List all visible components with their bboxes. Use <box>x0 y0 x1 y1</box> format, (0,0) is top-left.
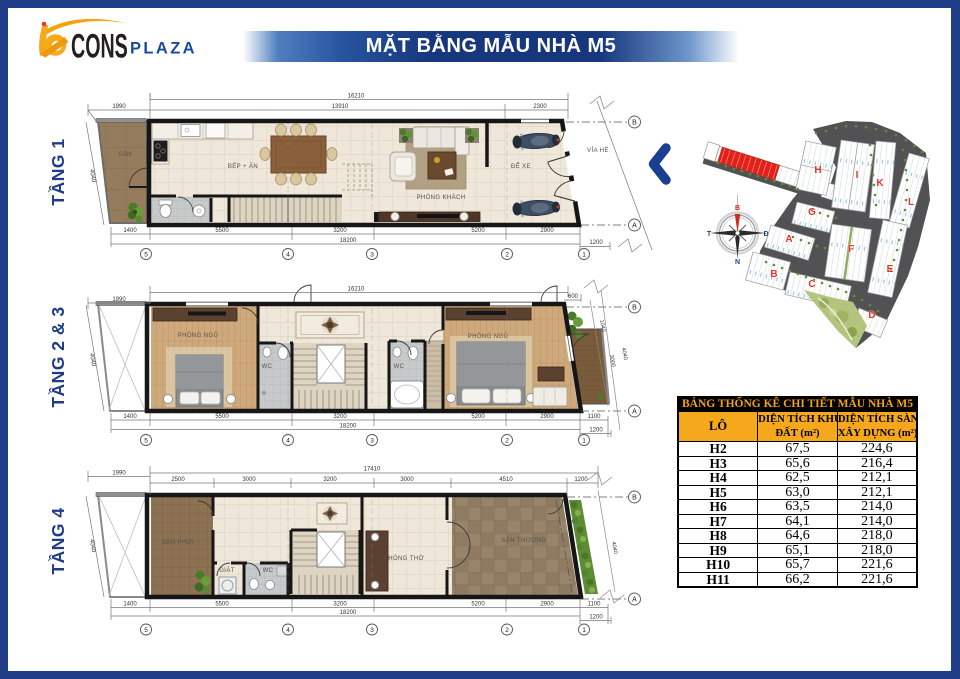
svg-text:3: 3 <box>370 437 374 444</box>
svg-text:SÂN: SÂN <box>118 151 132 158</box>
svg-text:5200: 5200 <box>471 602 485 608</box>
svg-text:2300: 2300 <box>533 104 547 110</box>
svg-text:18200: 18200 <box>340 424 357 430</box>
svg-text:Đ: Đ <box>763 231 768 238</box>
svg-text:1100: 1100 <box>588 602 602 608</box>
svg-text:SÂN PHƠI: SÂN PHƠI <box>162 539 194 546</box>
svg-text:A: A <box>632 223 637 230</box>
svg-text:2: 2 <box>505 627 509 634</box>
svg-text:T: T <box>707 231 712 238</box>
svg-text:WC: WC <box>262 364 273 370</box>
svg-text:B: B <box>770 269 777 280</box>
svg-text:K: K <box>876 178 884 189</box>
svg-text:PHÒNG KHÁCH: PHÒNG KHÁCH <box>416 194 465 201</box>
svg-text:1990: 1990 <box>112 297 126 303</box>
svg-text:18200: 18200 <box>340 610 357 616</box>
svg-text:A: A <box>632 597 637 604</box>
svg-text:3: 3 <box>370 251 374 258</box>
svg-text:B: B <box>632 120 637 127</box>
svg-text:1200: 1200 <box>589 615 603 621</box>
svg-text:TẦNG 2 & 3: TẦNG 2 & 3 <box>47 306 68 407</box>
svg-text:1200: 1200 <box>574 477 588 483</box>
svg-text:3000: 3000 <box>608 354 616 367</box>
svg-text:B: B <box>735 205 740 212</box>
svg-text:4510: 4510 <box>499 477 513 483</box>
svg-text:3000: 3000 <box>400 477 414 483</box>
svg-text:4040: 4040 <box>610 541 618 554</box>
svg-text:1200: 1200 <box>589 240 603 246</box>
svg-text:WC: WC <box>263 568 274 574</box>
svg-text:B: B <box>632 495 637 502</box>
svg-text:16210: 16210 <box>348 94 365 100</box>
svg-text:G: G <box>808 207 816 218</box>
svg-text:C: C <box>808 279 815 290</box>
svg-text:18200: 18200 <box>340 238 357 244</box>
svg-text:3: 3 <box>370 627 374 634</box>
svg-text:5500: 5500 <box>215 228 229 234</box>
svg-text:1: 1 <box>582 437 586 444</box>
svg-text:4040: 4040 <box>88 353 96 368</box>
svg-text:2900: 2900 <box>540 414 554 420</box>
svg-text:GIẶT: GIẶT <box>219 567 235 574</box>
svg-text:5: 5 <box>144 437 148 444</box>
svg-text:2: 2 <box>505 251 509 258</box>
svg-text:5500: 5500 <box>215 602 229 608</box>
svg-text:TẦNG 4: TẦNG 4 <box>47 507 68 574</box>
svg-text:L: L <box>908 197 914 208</box>
svg-text:13910: 13910 <box>332 104 349 110</box>
svg-text:I: I <box>856 170 859 181</box>
svg-text:PHÒNG NGỦ: PHÒNG NGỦ <box>178 332 219 339</box>
svg-text:5: 5 <box>144 251 148 258</box>
svg-text:D: D <box>868 310 875 321</box>
svg-text:2900: 2900 <box>540 602 554 608</box>
svg-text:600: 600 <box>568 294 579 300</box>
svg-text:1400: 1400 <box>123 228 137 234</box>
svg-text:1400: 1400 <box>123 414 137 420</box>
svg-text:BẾP + ĂN: BẾP + ĂN <box>228 163 258 170</box>
svg-text:16210: 16210 <box>348 287 365 293</box>
svg-text:TẦNG 1: TẦNG 1 <box>47 138 68 205</box>
svg-text:1990: 1990 <box>112 471 126 477</box>
svg-text:3200: 3200 <box>333 414 347 420</box>
svg-text:4040: 4040 <box>88 169 96 184</box>
svg-text:4040: 4040 <box>88 539 96 554</box>
svg-text:3200: 3200 <box>333 228 347 234</box>
svg-text:1: 1 <box>582 627 586 634</box>
svg-text:2500: 2500 <box>171 477 185 483</box>
svg-text:B: B <box>632 305 637 312</box>
svg-text:4: 4 <box>286 437 290 444</box>
svg-text:4: 4 <box>286 627 290 634</box>
svg-text:E: E <box>887 264 894 275</box>
svg-text:4: 4 <box>286 251 290 258</box>
svg-text:1200: 1200 <box>589 428 603 434</box>
svg-text:1: 1 <box>582 251 586 258</box>
svg-text:1400: 1400 <box>123 602 137 608</box>
svg-text:H: H <box>814 165 821 176</box>
svg-text:3200: 3200 <box>323 477 337 483</box>
svg-text:5500: 5500 <box>215 414 229 420</box>
svg-text:CONS: CONS <box>71 27 128 64</box>
svg-text:SÂN THƯỢNG: SÂN THƯỢNG <box>501 537 546 544</box>
svg-text:1990: 1990 <box>112 104 126 110</box>
svg-text:2: 2 <box>505 437 509 444</box>
svg-text:ĐỂ XE: ĐỂ XE <box>511 163 531 170</box>
svg-text:17410: 17410 <box>364 467 381 473</box>
svg-text:1100: 1100 <box>588 414 602 420</box>
svg-text:4040: 4040 <box>620 347 628 360</box>
svg-text:3200: 3200 <box>333 602 347 608</box>
svg-text:F: F <box>848 244 854 255</box>
svg-text:PHÒNG NGỦ: PHÒNG NGỦ <box>468 333 509 340</box>
svg-text:VỈA HÈ: VỈA HÈ <box>587 147 609 154</box>
svg-text:3000: 3000 <box>242 477 256 483</box>
svg-text:5200: 5200 <box>471 414 485 420</box>
svg-text:N: N <box>735 259 740 266</box>
svg-text:PLAZA: PLAZA <box>130 40 197 58</box>
svg-text:PHÒNG THỜ: PHÒNG THỜ <box>384 555 424 562</box>
svg-text:2900: 2900 <box>540 228 554 234</box>
svg-text:A: A <box>785 234 792 245</box>
svg-text:5200: 5200 <box>471 228 485 234</box>
svg-text:5: 5 <box>144 627 148 634</box>
svg-text:A: A <box>632 409 637 416</box>
svg-text:WC: WC <box>394 364 405 370</box>
